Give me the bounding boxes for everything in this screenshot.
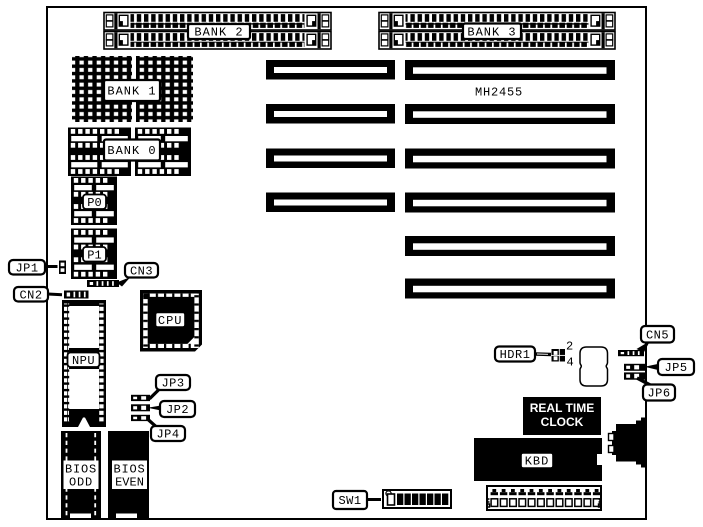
svg-text:BIOS: BIOS: [65, 463, 97, 477]
svg-text:REAL TIME: REAL TIME: [530, 401, 594, 415]
svg-text:EVEN: EVEN: [115, 476, 144, 490]
svg-text:JP4: JP4: [156, 428, 179, 442]
svg-text:CN2: CN2: [19, 288, 42, 302]
svg-text:JP2: JP2: [166, 403, 189, 417]
svg-text:BANK 2: BANK 2: [194, 26, 243, 40]
svg-text:HDR1: HDR1: [500, 348, 531, 362]
svg-text:CN3: CN3: [130, 264, 153, 278]
svg-text:ODD: ODD: [69, 476, 93, 490]
svg-text:4: 4: [567, 356, 574, 370]
svg-text:JP6: JP6: [647, 387, 670, 401]
svg-text:JP3: JP3: [161, 377, 184, 391]
svg-text:CLOCK: CLOCK: [541, 415, 584, 429]
svg-text:2: 2: [566, 340, 573, 354]
svg-text:JP5: JP5: [664, 361, 687, 375]
svg-text:CPU: CPU: [158, 314, 183, 328]
svg-text:CN5: CN5: [646, 328, 669, 342]
svg-text:KBD: KBD: [525, 455, 550, 469]
svg-text:MH2455: MH2455: [475, 86, 523, 100]
svg-text:SW1: SW1: [338, 494, 361, 508]
svg-text:NPU: NPU: [72, 354, 95, 368]
svg-text:JP1: JP1: [15, 261, 38, 275]
svg-text:BANK 0: BANK 0: [107, 144, 156, 158]
svg-text:BANK 1: BANK 1: [107, 85, 156, 99]
svg-text:P0: P0: [87, 196, 101, 210]
svg-text:BANK 3: BANK 3: [467, 26, 516, 40]
svg-text:BIOS: BIOS: [113, 463, 145, 477]
svg-text:P1: P1: [87, 248, 101, 262]
